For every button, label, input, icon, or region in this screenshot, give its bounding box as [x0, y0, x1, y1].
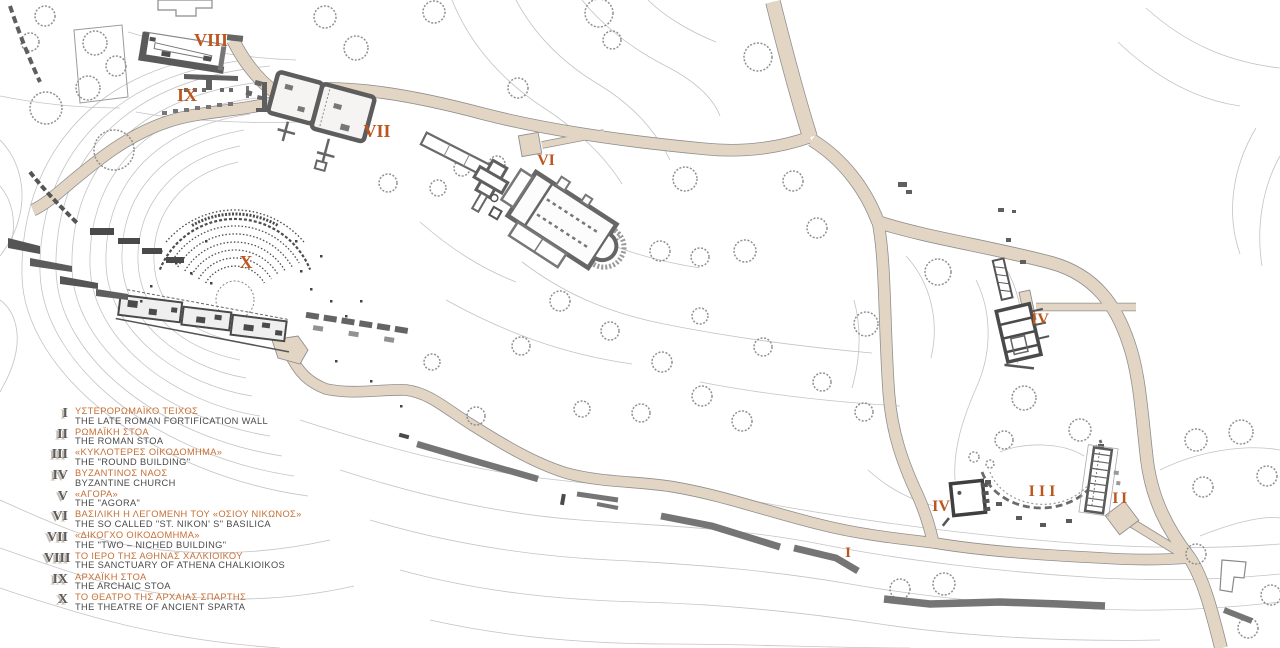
- tree-icon: [632, 404, 650, 422]
- tree-icon: [650, 241, 670, 261]
- tree-icon: [379, 174, 397, 192]
- building-l-shaped: [1220, 560, 1246, 592]
- legend-english: BYZANTINE CHURCH: [75, 479, 176, 489]
- tree-icon: [1229, 420, 1253, 444]
- legend-numeral: I: [44, 407, 68, 426]
- tree-icon: [692, 386, 712, 406]
- tree-icon: [35, 6, 55, 26]
- tree-icon: [512, 337, 530, 355]
- tree-icon: [925, 259, 951, 285]
- plot-outline: [74, 25, 128, 103]
- legend-numeral: VI: [44, 510, 68, 529]
- legend-numeral: IV: [44, 469, 68, 488]
- map-label-iv-north: IV: [1031, 311, 1049, 328]
- theatre-east-ruins: [304, 312, 408, 345]
- legend-english: THE THEATRE OF ANCIENT SPARTA: [75, 603, 246, 613]
- legend-english: THE "ROUND BUILDING": [75, 458, 222, 468]
- tree-icon: [550, 291, 570, 311]
- legend-english: THE "TWO – NICHED BUILDING": [75, 541, 226, 551]
- legend-item: I ΥΣΤΕΡΟΡΩΜΑΪΚΟ ΤΕΙΧΟΣTHE LATE ROMAN FOR…: [44, 407, 302, 426]
- legend-item: VIII ΤΟ ΙΕΡΟ ΤΗΣ ΑΘΗΝΑΣ ΧΑΛΚΙΟΙΚΟΥTHE SA…: [44, 552, 302, 571]
- legend-english: THE ROMAN STOA: [75, 437, 163, 447]
- map-label-viii: VIII: [194, 30, 228, 50]
- modern-building-outline: [158, 0, 212, 16]
- tree-icon: [744, 43, 772, 71]
- tree-icon: [1193, 477, 1213, 497]
- tree-icon: [106, 56, 126, 76]
- road-end-block: [227, 34, 244, 42]
- legend-numeral: II: [44, 428, 68, 447]
- tree-icon: [423, 1, 445, 23]
- tree-icon: [1257, 466, 1277, 486]
- tree-icon: [1012, 386, 1036, 410]
- tree-icon: [424, 354, 440, 370]
- tree-icon: [890, 579, 910, 599]
- site-map: VIII IX VII VI X IV IV III II I I ΥΣΤΕΡΟ…: [0, 0, 1280, 648]
- tree-icon: [783, 171, 803, 191]
- tree-icon: [585, 0, 613, 27]
- tree-icon: [813, 373, 831, 391]
- legend-item: V «ΑΓΟΡΑ»THE "AGORA": [44, 490, 302, 509]
- legend-item: VII «ΔΙΚΟΓΧΟ ΟΙΚΟΔΟΜΗΜΑ»THE "TWO – NICHE…: [44, 531, 302, 550]
- legend: I ΥΣΤΕΡΟΡΩΜΑΪΚΟ ΤΕΙΧΟΣTHE LATE ROMAN FOR…: [44, 407, 302, 614]
- tree-icon: [601, 322, 619, 340]
- legend-numeral: VIII: [44, 552, 68, 571]
- legend-item: VI ΒΑΣΙΛΙΚΗ Η ΛΕΓΟΜΕΝΗ ΤΟΥ «ΟΣΙΟΥ ΝΙΚΩΝΟ…: [44, 510, 302, 529]
- legend-item: II ΡΩΜΑΪΚΗ ΣΤΟΑTHE ROMAN STOA: [44, 428, 302, 447]
- map-label-vi: VI: [537, 152, 555, 169]
- legend-item: X ΤΟ ΘΕΑΤΡΟ ΤΗΣ ΑΡΧΑΙΑΣ ΣΠΑΡΤΗΣTHE THEAT…: [44, 593, 302, 612]
- legend-numeral: VII: [44, 531, 68, 550]
- map-label-i: I: [845, 545, 851, 561]
- tree-icon: [83, 31, 107, 55]
- legend-english: THE "AGORA": [75, 499, 140, 509]
- legend-item: IV ΒΥΖΑΝΤΙΝΟΣ ΝΑΟΣBYZANTINE CHURCH: [44, 469, 302, 488]
- tree-icon: [691, 248, 709, 266]
- building-two-niched: [232, 65, 375, 179]
- tree-icon: [933, 573, 955, 595]
- tree-icon: [1261, 585, 1280, 605]
- tree-icon: [314, 6, 336, 28]
- tree-icon: [1069, 419, 1091, 441]
- map-label-ii: II: [1112, 490, 1129, 507]
- map-label-x: X: [240, 252, 253, 272]
- map-label-iv-south: IV: [932, 498, 950, 515]
- tree-icon: [854, 312, 878, 336]
- tree-icon: [574, 401, 590, 417]
- map-label-vii: VII: [363, 121, 390, 141]
- legend-numeral: X: [44, 593, 68, 612]
- tree-icon: [30, 92, 62, 124]
- map-label-iii: III: [1029, 483, 1060, 500]
- legend-english: THE LATE ROMAN FORTIFICATION WALL: [75, 417, 268, 427]
- tree-icon: [855, 403, 873, 421]
- legend-english: THE SANCTUARY OF ATHENA CHALKIOIKOS: [75, 561, 285, 571]
- tree-icon: [1185, 429, 1207, 451]
- tree-icon: [734, 240, 756, 262]
- tree-icon: [508, 78, 528, 98]
- theatre-complex: [8, 172, 408, 408]
- legend-numeral: IX: [44, 573, 68, 592]
- tree-icon: [344, 36, 368, 60]
- legend-english: THE ARCHAIC STOA: [75, 582, 171, 592]
- legend-numeral: III: [44, 448, 68, 467]
- tree-icon: [807, 218, 827, 238]
- legend-numeral: V: [44, 490, 68, 509]
- tree-icon: [986, 460, 994, 468]
- tree-icon: [692, 308, 708, 324]
- tree-icon: [652, 352, 672, 372]
- tree-icon: [673, 167, 697, 191]
- theatre-west-ruins: [8, 172, 184, 300]
- tree-icon: [430, 180, 446, 196]
- tree-icon: [995, 431, 1013, 449]
- tree-icon: [603, 31, 621, 49]
- legend-english: THE SO CALLED "ST. NIKON' S" BASILICA: [75, 520, 302, 530]
- tree-icon: [969, 452, 979, 462]
- theatre-stage-ruins: [114, 289, 294, 352]
- legend-item: IX ΑΡΧΑΪΚΗ ΣΤΟΑTHE ARCHAIC STOA: [44, 573, 302, 592]
- tree-icon: [732, 411, 752, 431]
- map-label-ix: IX: [177, 85, 197, 105]
- legend-item: III «ΚΥΚΛΟΤΕΡΕΣ ΟΙΚΟΔΟΜΗΜΑ»THE "ROUND BU…: [44, 448, 302, 467]
